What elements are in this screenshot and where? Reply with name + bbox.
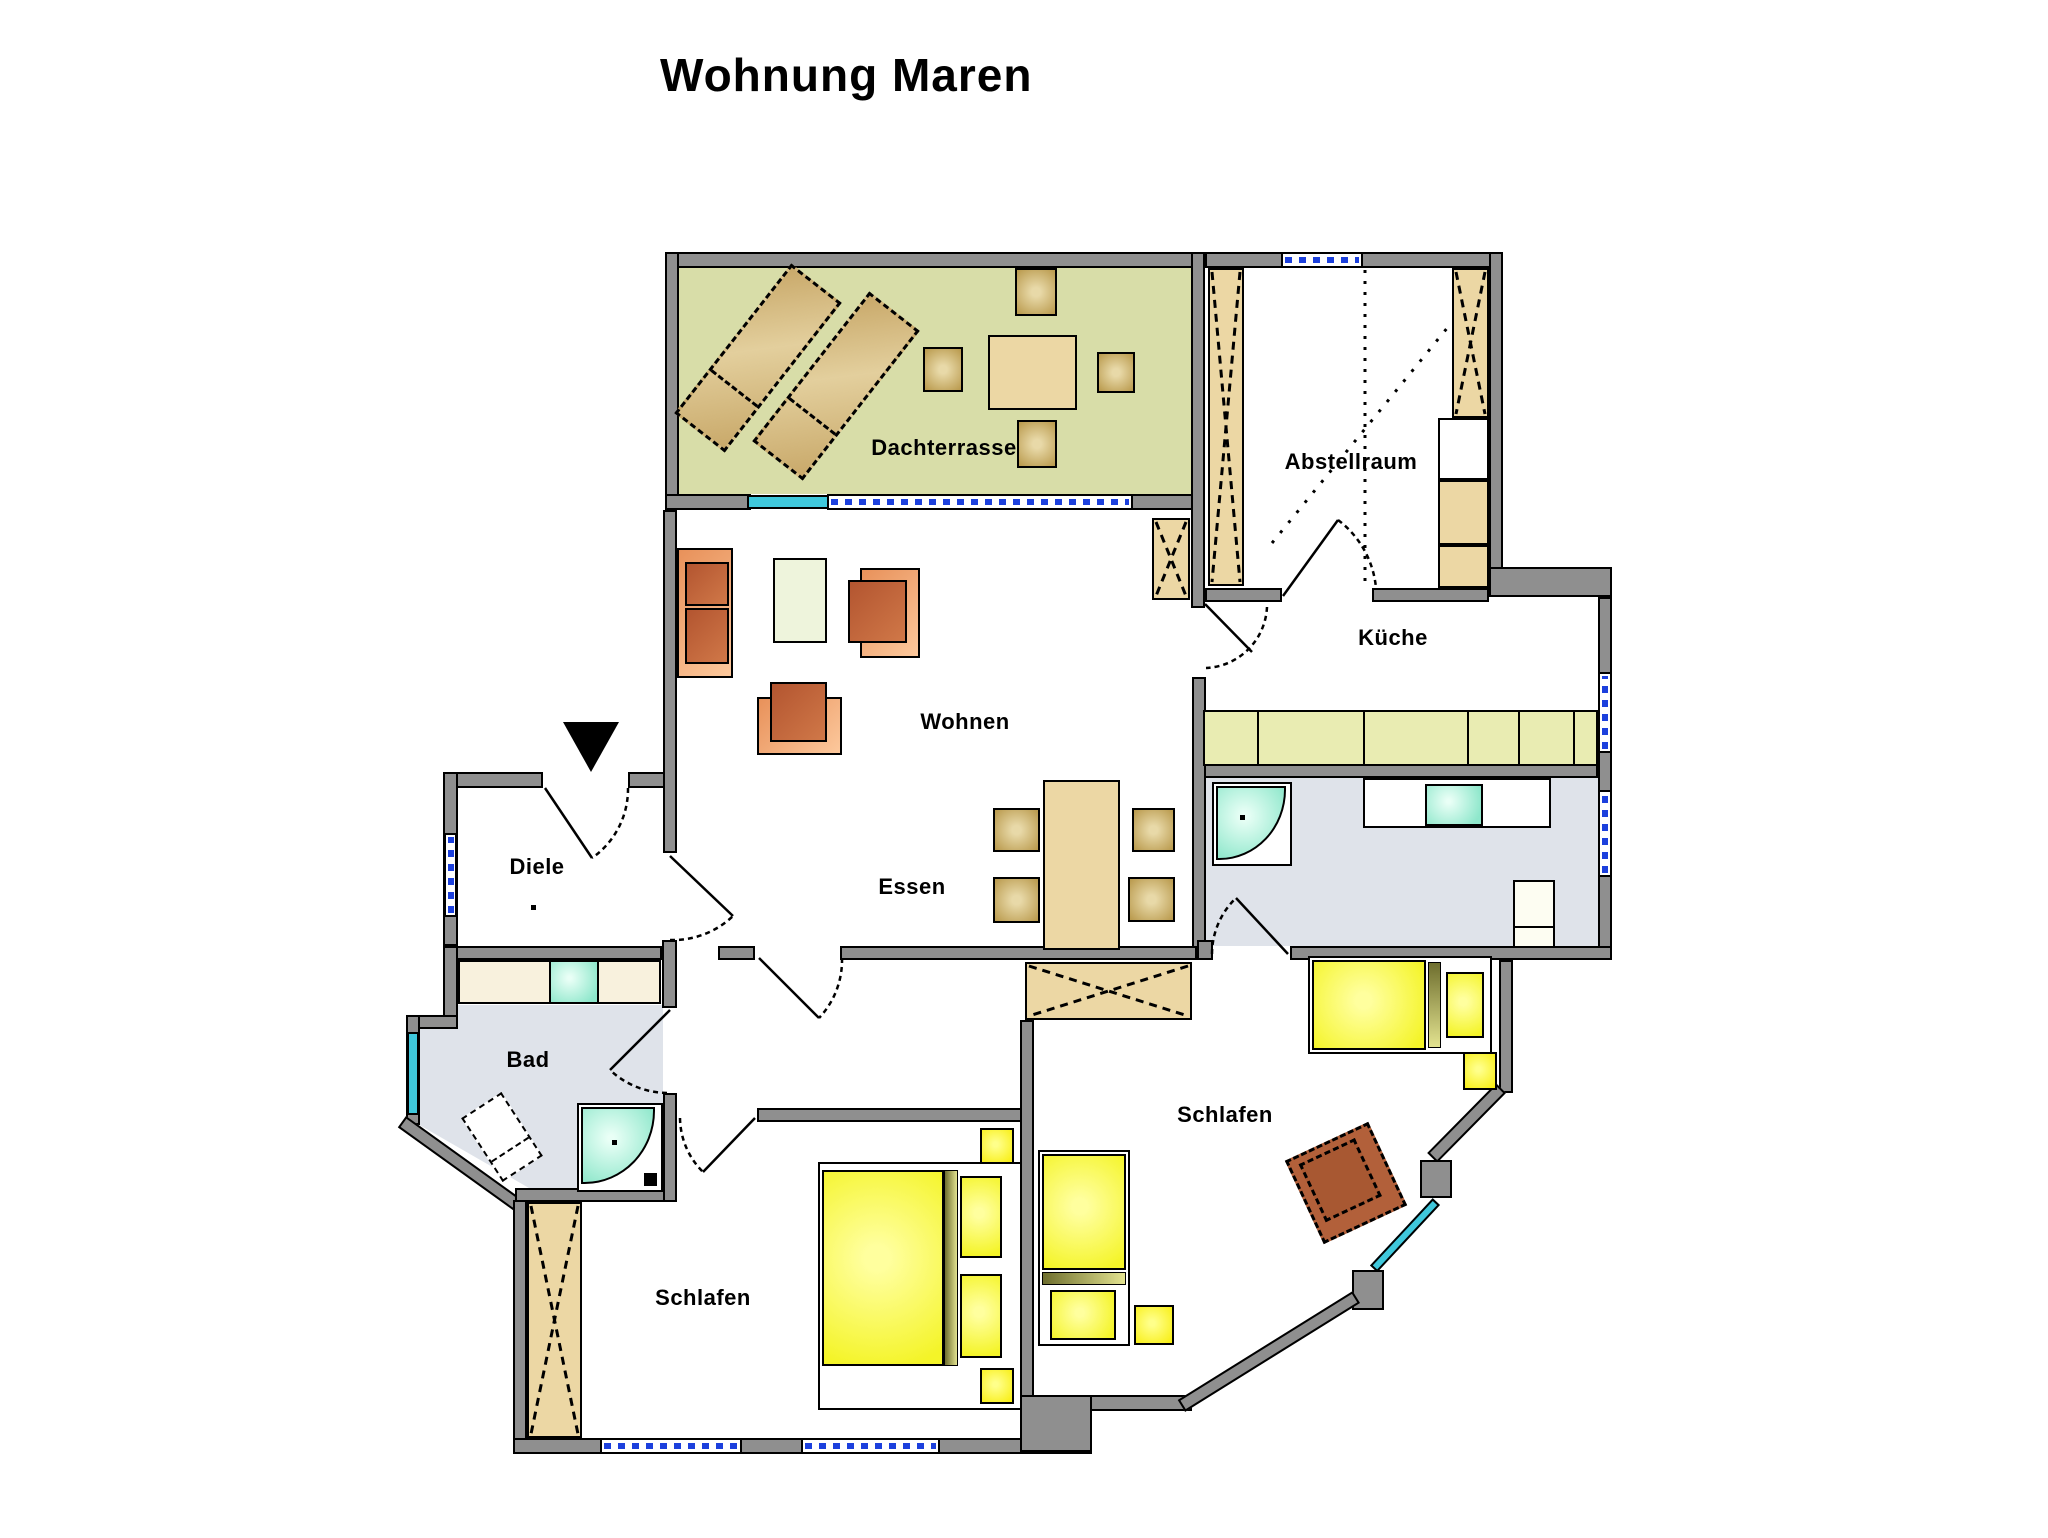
room-label-abstellraum: Abstellraum (1285, 449, 1418, 475)
room-label-schlafen-links: Schlafen (655, 1285, 751, 1311)
x-brace-bedroom-column (531, 1206, 578, 1434)
room-label-diele: Diele (509, 854, 564, 880)
room-label-dachterrasse: Dachterrasse (871, 435, 1016, 461)
storage-roof-line-diagonal (1272, 327, 1448, 543)
bedroom-left-door-arc (680, 1118, 703, 1172)
storage-door-arc (1338, 520, 1376, 588)
passage-door-leaf (759, 958, 819, 1018)
x-brace-dining-beam (1029, 966, 1188, 1016)
room-label-bad: Bad (506, 1047, 549, 1073)
storage-door-leaf (1283, 520, 1338, 596)
passage-door-arc (819, 958, 842, 1018)
entrance-door-leaf (545, 788, 592, 858)
shower-room-door-leaf (1236, 898, 1288, 954)
hall-living-door-leaf (670, 856, 733, 916)
floorplan-canvas: Wohnung Maren (0, 0, 2048, 1538)
x-brace-storage-left-column (1212, 272, 1240, 582)
x-brace-storage-right-column (1456, 272, 1485, 414)
shower-room-door-arc (1212, 898, 1236, 954)
bath-door-arc (610, 1070, 667, 1093)
x-brace-living-corner-column (1156, 522, 1186, 596)
room-label-kueche: Küche (1358, 625, 1428, 651)
hall-living-door-arc (670, 916, 733, 940)
plan-annotations (0, 0, 2048, 1538)
room-label-schlafen-rechts: Schlafen (1177, 1102, 1273, 1128)
entrance-door-arc (592, 788, 628, 858)
room-label-essen: Essen (878, 874, 945, 900)
bath-door-leaf (610, 1010, 670, 1070)
bedroom-left-door-leaf (703, 1118, 755, 1172)
kitchen-door-leaf (1205, 604, 1252, 652)
room-label-wohnen: Wohnen (920, 709, 1009, 735)
